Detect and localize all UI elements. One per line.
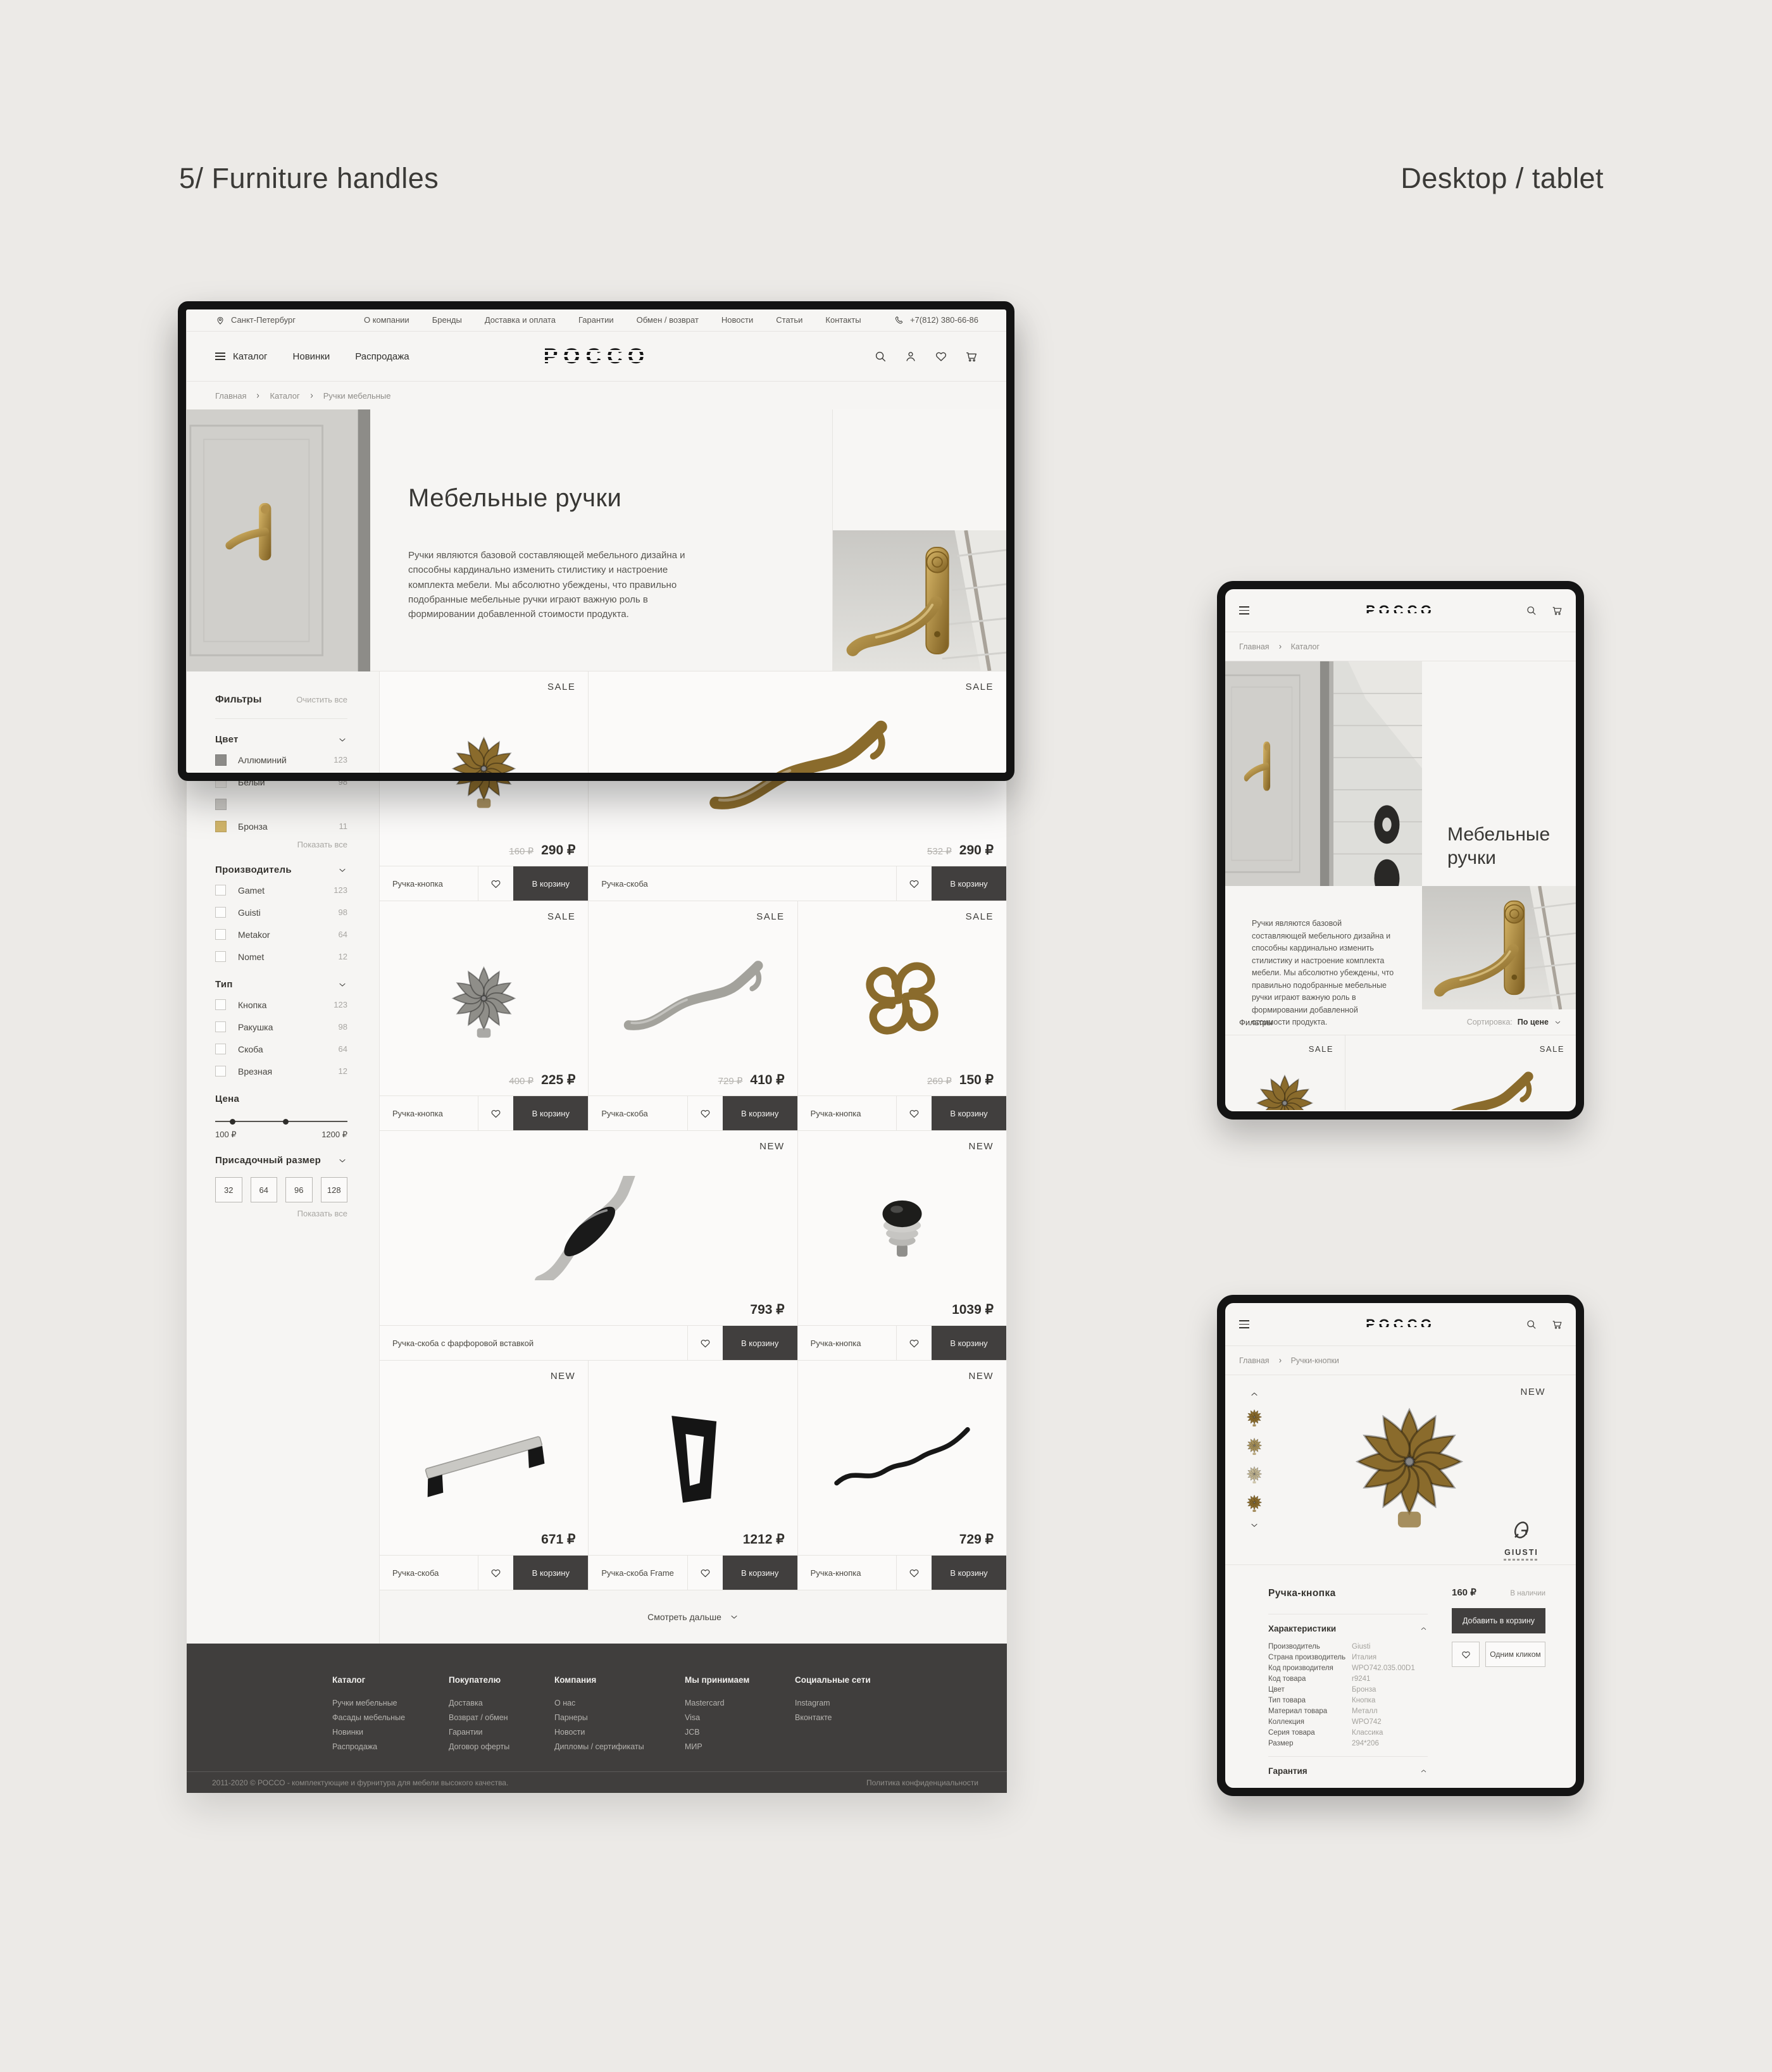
checkbox[interactable] [215,885,226,896]
checkbox[interactable] [215,1066,226,1077]
wishlist-button[interactable] [896,1556,932,1590]
color-option[interactable]: Аллюминий 123 [215,752,347,767]
topbar-link-contacts[interactable]: Контакты [825,315,861,325]
wishlist-button[interactable] [687,1096,723,1130]
type-option[interactable]: Скоба 64 [215,1042,347,1056]
color-label: Бронза [238,821,339,832]
add-to-cart-button[interactable]: В корзину [932,1096,1006,1130]
product-label: Ручка-кнопка [798,1326,896,1360]
device-label: Desktop / tablet [1401,162,1604,195]
sort-dropdown[interactable]: Сортировка: По цене [1467,1018,1562,1027]
wishlist-button[interactable] [896,866,932,901]
phone-number: +7(812) 380-66-86 [910,315,978,325]
checkbox[interactable] [215,907,226,918]
sale-badge: SALE [1309,1044,1333,1054]
heart-icon [908,878,920,890]
product-card: 1212 ₽ Ручка-скоба Frame В корзину [589,1361,797,1590]
heart-icon [490,1567,502,1579]
topbar-link-delivery[interactable]: Доставка и оплата [485,315,556,325]
type-count: 98 [339,1022,347,1032]
hero-section: Мебельные ручки [1225,661,1576,886]
footer-column-catalog: Каталог Ручки мебельные Фасады мебельные… [332,1675,449,1757]
footer-column-title: Мы принимаем [685,1675,795,1685]
main-nav-links: Каталог Новинки Распродажа [215,351,409,362]
type-label: Кнопка [238,1000,334,1010]
color-swatch [215,754,227,766]
footer-link[interactable]: Вконтакте [795,1713,871,1722]
old-price: 160 ₽ [509,846,533,857]
hero-content: Мебельные ручки Ручки являются базовой с… [370,409,832,671]
size-section-title: Присадочный размер [215,1155,321,1166]
heart-icon [908,1567,920,1579]
wishlist-button[interactable] [896,1326,932,1360]
wishlist-button[interactable] [478,1096,513,1130]
copyright: 2011-2020 © РОССО - комплектующие и фурн… [212,1778,508,1787]
type-section-title: Тип [215,979,233,990]
load-more-label: Смотреть дальше [647,1612,721,1622]
type-label: Ракушка [238,1022,339,1032]
product-photo[interactable]: NEW 671 ₽ [380,1361,588,1555]
clear-all-button[interactable]: Очистить все [296,695,347,704]
add-to-cart-button[interactable]: В корзину [513,1556,588,1590]
show-all-sizes[interactable]: Показать все [215,1209,347,1218]
footer-link[interactable]: Instagram [795,1699,871,1707]
brand-logo[interactable]: РОССО [544,344,650,369]
heart-icon [908,1108,920,1120]
footer-column-customer: Покупателю Доставка Возврат / обмен Гара… [449,1675,554,1757]
sale-badge: SALE [966,682,994,692]
chevron-down-icon [337,1156,347,1166]
product-card: SALE 160 ₽290 ₽ Ручка-кнопка В корзину [380,671,589,901]
knob-flower-brass-image [441,720,527,818]
spec-name: Код производителя [1268,1664,1352,1672]
filter-section-color[interactable]: Цвет [215,734,347,745]
thumbnail-image[interactable] [1244,1463,1265,1485]
product-label: Ручка-кнопка [380,866,478,901]
chevron-down-icon [337,980,347,990]
thumbnail-strip [1242,1389,1267,1530]
product-label: Ручка-скоба [589,866,896,901]
location-pin-icon [215,315,225,325]
handle-frame-black-image [650,1409,735,1507]
product-photo[interactable]: SALE 160 ₽290 ₽ [380,671,588,866]
wishlist-icon[interactable] [934,349,948,363]
price: 290 ₽ [959,842,994,858]
page-title: 5/ Furniture handles [179,162,439,195]
chevron-down-icon [729,1612,739,1622]
load-more-button[interactable]: Смотреть дальше [380,1590,1007,1644]
new-badge: NEW [969,1141,994,1152]
old-price: 269 ₽ [927,1075,952,1087]
type-count: 64 [339,1044,347,1054]
cart-icon[interactable] [964,349,978,363]
old-price: 532 ₽ [927,846,952,857]
heart-icon [490,878,502,890]
footer-link[interactable]: Договор оферты [449,1742,554,1751]
breadcrumb: Главная Каталог Ручки мебельные [187,382,1007,409]
brand-tagline [1504,1559,1539,1561]
one-click-buy-button[interactable]: Одним кликом [1485,1642,1545,1667]
specs-table: ПроизводительGiusti Страна производитель… [1268,1641,1428,1749]
checkbox[interactable] [215,951,226,962]
color-option[interactable]: Бронза 11 [215,819,347,833]
hamburger-icon[interactable] [1239,606,1249,614]
type-label: Врезная [238,1066,339,1077]
checkbox[interactable] [215,1021,226,1032]
catalog-section: Фильтры Очистить все Цвет Аллюминий 123 … [187,671,1007,1644]
price: 1212 ₽ [743,1532,785,1547]
design-canvas: 5/ Furniture handles Desktop / tablet Са… [0,0,1772,2072]
spec-value: 294*206 [1352,1740,1379,1747]
color-option[interactable]: Белый 98 [215,775,347,789]
product-label: Ручка-скоба [589,1096,687,1130]
footer-link[interactable]: Возврат / обмен [449,1713,554,1722]
chevron-down-icon[interactable] [1249,1520,1259,1530]
thumbnail-image[interactable] [1244,1406,1265,1428]
manufacturer-section-title: Производитель [215,864,292,875]
breadcrumb: Главная Каталог [1225,632,1576,661]
footer: Каталог Ручки мебельные Фасады мебельные… [187,1644,1007,1793]
warranty-title: Гарантия [1268,1766,1307,1776]
product-card[interactable]: SALE [1345,1035,1576,1110]
knob-flower-brass-image [1247,1062,1323,1110]
handle-wave-black-image [828,1415,976,1501]
add-to-cart-button[interactable]: Добавить в корзину [1452,1608,1545,1633]
manufacturer-label: Nomet [238,952,339,962]
footer-link[interactable]: Дипломы / сертификаты [554,1742,685,1751]
heart-icon [1461,1649,1471,1660]
manufacturer-label: Gamet [238,885,334,896]
sale-badge: SALE [547,682,575,692]
desktop-main-nav: Каталог Новинки Распродажа РОССО [187,332,1007,382]
chevron-up-icon [1419,1625,1428,1633]
product-card: NEW 793 ₽ Ручка-скоба с фарфоровой встав… [380,1131,798,1361]
new-badge: NEW [759,1141,785,1152]
search-icon[interactable] [1525,1318,1537,1330]
hero-door-photo [187,409,370,671]
footer-link[interactable]: Распродажа [332,1742,449,1751]
filters-title: Фильтры [215,694,261,706]
spec-value: Италия [1352,1654,1376,1661]
specs-title: Характеристики [1268,1624,1336,1633]
filter-section-manufacturer[interactable]: Производитель [215,864,347,875]
spec-value: Бронза [1352,1686,1376,1694]
manufacturer-count: 98 [339,908,347,917]
new-badge: NEW [551,1371,576,1382]
color-swatch [215,821,227,832]
chevron-down-icon [1554,1018,1562,1027]
spec-name: Материал товара [1268,1707,1352,1715]
spec-name: Серия товара [1268,1729,1352,1737]
footer-link[interactable]: О нас [554,1699,685,1707]
product-grid: SALE SALE [1225,1035,1576,1110]
old-price: 400 ₽ [509,1075,533,1087]
product-label: Ручка-кнопка [380,1096,478,1130]
checkbox[interactable] [215,929,226,940]
product-card[interactable]: SALE [1225,1035,1345,1110]
footer-column-title: Компания [554,1675,685,1685]
hero-content: Мебельные ручки [1422,661,1576,886]
product-photo[interactable]: SALE 400 ₽225 ₽ [380,901,588,1095]
breadcrumb-catalog[interactable]: Каталог [270,391,299,401]
footer-column-company: Компания О нас Парнеры Новости Дипломы /… [554,1675,685,1757]
hamburger-icon[interactable] [1239,1320,1249,1328]
spec-name: Страна производитель [1268,1654,1352,1661]
manufacturer-option[interactable]: Guisti 98 [215,905,347,920]
topbar-link-articles[interactable]: Статьи [776,315,802,325]
product-grid: SALE 160 ₽290 ₽ Ручка-кнопка В корзину [380,671,1007,1590]
hero-description: Ручки являются базовой составляющей мебе… [408,548,712,621]
type-option[interactable]: Кнопка 123 [215,997,347,1012]
sale-badge: SALE [966,911,994,922]
footer-link[interactable]: Mastercard [685,1699,795,1707]
filter-section-type[interactable]: Тип [215,979,347,990]
add-to-cart-button[interactable]: В корзину [932,1326,1006,1360]
hero-description: Ручки являются базовой составляющей мебе… [1225,886,1422,1009]
heart-icon [699,1337,711,1349]
availability-badge: В наличии [1510,1590,1545,1597]
product-label: Ручка-кнопка [798,1096,896,1130]
wishlist-button[interactable] [478,1556,513,1590]
product-label: Ручка-скоба Frame [589,1556,687,1590]
color-label: Аллюминий [238,755,334,765]
tablet-product-screenshot: РОССО Главная Ручки-кнопки NEW [1217,1295,1584,1796]
footer-link[interactable]: Новинки [332,1728,449,1737]
color-swatch [215,799,227,810]
manufacturer-option[interactable]: Nomet 12 [215,949,347,964]
chevron-up-icon[interactable] [1249,1389,1259,1399]
product-label: Ручка-скоба с фарфоровой вставкой [380,1326,687,1360]
slider-handle-max[interactable] [283,1119,289,1125]
brand-name: GIUSTI [1492,1548,1550,1557]
checkbox[interactable] [215,1044,226,1054]
spec-name: Размер [1268,1740,1352,1747]
heart-icon [908,1337,920,1349]
spec-name: Код товара [1268,1675,1352,1683]
privacy-policy-link[interactable]: Политика конфиденциальности [866,1778,978,1787]
product-card: SALE 729 ₽410 ₽ Ручка-скоба В корзину [589,901,797,1131]
color-count: 98 [339,777,347,787]
footer-link[interactable]: Парнеры [554,1713,685,1722]
filters-button[interactable]: Фильтры [1239,1018,1273,1027]
filter-section-price: Цена [215,1094,347,1104]
hero-title: Мебельные ручки [408,484,832,513]
price: 671 ₽ [541,1532,575,1547]
product-photo[interactable]: 1212 ₽ [589,1361,797,1555]
nav-link-sale[interactable]: Распродажа [355,351,409,362]
price-section-title: Цена [215,1094,239,1104]
add-to-cart-button[interactable]: В корзину [723,1556,797,1590]
spec-value: Металл [1352,1707,1378,1715]
new-badge: NEW [969,1371,994,1382]
city-selector[interactable]: Санкт-Петербург [215,315,364,325]
phone-icon [894,315,904,325]
footer-link[interactable]: Гарантии [449,1728,554,1737]
spec-name: Производитель [1268,1643,1352,1651]
catalog-menu-button[interactable]: Каталог [215,351,268,362]
sort-label: Сортировка: [1467,1018,1513,1027]
topbar-link-warranty[interactable]: Гарантии [578,315,614,325]
hero-door-photo [1225,661,1422,886]
heart-icon [490,1108,502,1120]
chevron-right-icon [254,392,261,399]
product-card: SALE 532 ₽290 ₽ Ручка-скоба В корзину [589,671,1007,901]
price: 793 ₽ [750,1302,784,1318]
color-swatch [215,777,227,788]
topbar-link-exchange[interactable]: Обмен / возврат [637,315,699,325]
color-label: Белый [238,777,339,787]
product-title: Ручка-кнопка [1268,1588,1428,1599]
add-to-cart-button[interactable]: В корзину [723,1096,797,1130]
hero-section: Мебельные ручки Ручки являются базовой с… [187,409,1007,671]
product-card: NEW 729 ₽ Ручка-кнопка В корзину [798,1361,1007,1590]
add-to-cart-button[interactable]: В корзину [932,866,1006,901]
footer-link[interactable]: Visa [685,1713,795,1722]
footer-link[interactable]: Доставка [449,1699,554,1707]
type-option[interactable]: Врезная 12 [215,1064,347,1078]
footer-link[interactable]: МИР [685,1742,795,1751]
thumbnail-image[interactable] [1244,1435,1265,1456]
spec-name: Коллекция [1268,1718,1352,1726]
footer-column-social: Социальные сети Instagram Вконтакте [795,1675,871,1757]
spec-value: WPO742 [1352,1718,1382,1726]
cart-icon[interactable] [1551,604,1563,616]
breadcrumb-home[interactable]: Главная [215,391,246,401]
size-option-128[interactable]: 128 [321,1177,348,1202]
phone-link[interactable]: +7(812) 380-66-86 [894,315,978,325]
city-label: Санкт-Петербург [231,315,296,325]
footer-column-title: Покупателю [449,1675,554,1685]
price: 290 ₽ [541,842,575,858]
footer-column-title: Социальные сети [795,1675,871,1685]
hero-description-row: Ручки являются базовой составляющей мебе… [1225,886,1576,1009]
breadcrumb-current: Ручки мебельные [323,391,391,401]
manufacturer-count: 123 [334,885,347,895]
giusti-logo-icon [1509,1519,1534,1544]
add-to-cart-button[interactable]: В корзину [513,866,588,901]
thumbnail-image[interactable] [1244,1492,1265,1513]
tablet-header: РОССО [1225,1303,1576,1346]
old-price: 729 ₽ [718,1075,743,1087]
add-to-cart-button[interactable]: В корзину [932,1556,1006,1590]
knob-flower-silver-image [441,949,527,1047]
heart-icon [699,1567,711,1579]
product-card: NEW 671 ₽ Ручка-скоба В корзину [380,1361,589,1590]
spec-value: Кнопка [1352,1697,1375,1704]
color-option[interactable] [215,797,347,811]
manufacturer-count: 64 [339,930,347,939]
tablet-catalog-screenshot: РОССО Главная Каталог Мебельные ручки Ру… [1217,581,1584,1120]
hero-handle-photo [832,409,1007,671]
chevron-down-icon [337,735,347,745]
search-icon[interactable] [873,349,887,363]
product-photo[interactable]: SALE 532 ₽290 ₽ [589,671,1006,866]
product-card: SALE 269 ₽150 ₽ Ручка-кнопка В корзину [798,901,1007,1131]
chevron-right-icon [1277,1357,1283,1364]
spec-value: Классика [1352,1729,1383,1737]
account-icon[interactable] [904,349,918,363]
product-photo[interactable]: NEW 793 ₽ [380,1131,797,1325]
brand-logo[interactable]: РОССО [1366,1316,1435,1333]
size-option-96[interactable]: 96 [285,1177,313,1202]
type-count: 123 [334,1000,347,1009]
product-photo[interactable]: SALE 269 ₽150 ₽ [798,901,1006,1095]
chevron-up-icon [1419,1767,1428,1775]
specs-accordion[interactable]: Характеристики [1268,1624,1428,1633]
checkbox[interactable] [215,999,226,1010]
wishlist-button[interactable] [1452,1642,1480,1667]
slider-handle-min[interactable] [230,1119,235,1125]
breadcrumb-home[interactable]: Главная [1239,642,1270,651]
brand-mark: GIUSTI [1492,1519,1550,1561]
cart-icon[interactable] [1551,1318,1563,1330]
type-count: 12 [339,1066,347,1076]
nav-link-new[interactable]: Новинки [293,351,330,362]
topbar-link-news[interactable]: Новости [721,315,753,325]
price: 150 ₽ [959,1072,994,1088]
product-photo[interactable]: NEW 729 ₽ [798,1361,1006,1555]
footer-link[interactable]: Новости [554,1728,685,1737]
hero-handle-photo [1422,886,1576,1009]
manufacturer-label: Guisti [238,908,339,918]
manufacturer-option[interactable]: Metakor 64 [215,927,347,942]
hero-title: Мебельные ручки [1447,823,1576,870]
footer-link[interactable]: JCB [685,1728,795,1737]
price: 225 ₽ [541,1072,575,1088]
wishlist-button[interactable] [687,1326,723,1360]
handle-curve-brass-image [699,716,895,821]
spec-name: Тип товара [1268,1697,1352,1704]
footer-column-title: Каталог [332,1675,449,1685]
footer-link[interactable]: Фасады мебельные [332,1713,449,1722]
breadcrumb-current: Каталог [1291,642,1320,651]
topbar-link-about[interactable]: О компании [364,315,409,325]
sort-value: По цене [1518,1018,1549,1027]
add-to-cart-button[interactable]: В корзину [723,1326,797,1360]
desktop-screenshot: Санкт-Петербург О компании Бренды Достав… [187,309,1007,1793]
price: 729 ₽ [959,1532,994,1547]
wishlist-button[interactable] [896,1096,932,1130]
footer-link[interactable]: Ручки мебельные [332,1699,449,1707]
type-option[interactable]: Ракушка 98 [215,1020,347,1034]
product-price: 160 ₽ [1452,1587,1476,1598]
chevron-down-icon [337,865,347,875]
breadcrumb-home[interactable]: Главная [1239,1356,1270,1365]
warranty-accordion[interactable]: Гарантия [1268,1766,1428,1776]
sale-badge: SALE [1540,1044,1564,1054]
product-label: Ручка-скоба [380,1556,478,1590]
filter-section-size[interactable]: Присадочный размер [215,1155,347,1166]
wishlist-button[interactable] [687,1556,723,1590]
size-option-32[interactable]: 32 [215,1177,242,1202]
search-icon[interactable] [1525,604,1537,616]
product-photo[interactable]: NEW 1039 ₽ [798,1131,1006,1325]
price-range-slider[interactable] [215,1121,347,1122]
add-to-cart-button[interactable]: В корзину [513,1096,588,1130]
manufacturer-count: 12 [339,952,347,961]
wishlist-button[interactable] [478,866,513,901]
show-all-colors[interactable]: Показать все [215,840,347,849]
product-main-image[interactable] [1338,1385,1481,1544]
manufacturer-option[interactable]: Gamet 123 [215,883,347,897]
breadcrumb: Главная Ручки-кнопки [1225,1346,1576,1375]
color-count: 11 [339,821,348,831]
topbar-link-brands[interactable]: Бренды [432,315,462,325]
product-photo[interactable]: SALE 729 ₽410 ₽ [589,901,797,1095]
size-option-64[interactable]: 64 [251,1177,278,1202]
spec-value: Giusti [1352,1643,1370,1651]
brand-logo[interactable]: РОССО [1366,602,1435,619]
